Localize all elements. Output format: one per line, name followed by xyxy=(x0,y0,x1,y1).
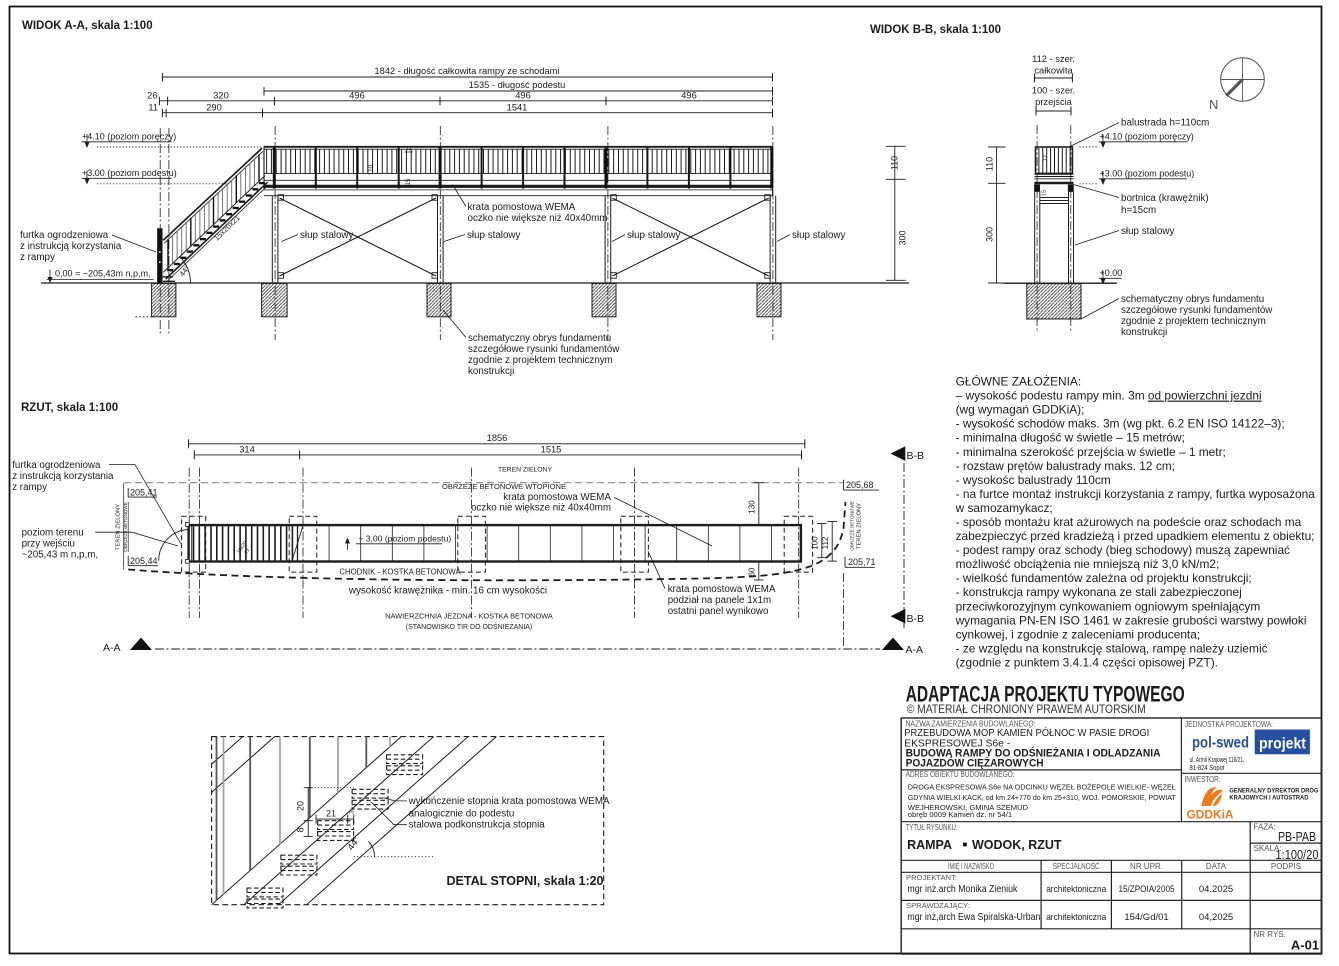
svg-text:1:100/20: 1:100/20 xyxy=(1276,847,1319,862)
svg-text:WIDOK A-A, skala 1:100: WIDOK A-A, skala 1:100 xyxy=(22,20,153,32)
svg-text:TYTUŁ RYSUNKU:: TYTUŁ RYSUNKU: xyxy=(906,823,958,832)
svg-text:słup stalowy: słup stalowy xyxy=(1121,226,1174,237)
svg-text:OBRZEŻE BETONOWE: OBRZEŻE BETONOWE xyxy=(122,502,128,552)
svg-text:bortnica (krawężnik): bortnica (krawężnik) xyxy=(1121,193,1209,204)
svg-text:wykończenie stopnia krata pomo: wykończenie stopnia krata pomostowa WEMA xyxy=(408,796,610,807)
svg-text:słup stalowy: słup stalowy xyxy=(467,230,520,241)
svg-text:obręb 0009 Kamień dz. nr 54/1: obręb 0009 Kamień dz. nr 54/1 xyxy=(908,810,1012,819)
svg-text:100: 100 xyxy=(811,536,820,550)
svg-text:mgr inż.arch Monika Zieniuk: mgr inż.arch Monika Zieniuk xyxy=(907,884,1018,895)
svg-text:całkowita: całkowita xyxy=(1034,66,1073,76)
svg-text:konstrukcji: konstrukcji xyxy=(1121,327,1167,338)
svg-text:DETAL STOPNI, skala 1:20: DETAL STOPNI, skala 1:20 xyxy=(447,874,604,888)
svg-text:słup stalowy: słup stalowy xyxy=(792,230,845,241)
svg-text:496: 496 xyxy=(681,91,697,101)
svg-text:przejścia: przejścia xyxy=(1035,97,1073,107)
svg-text:TEREN ZIELONY: TEREN ZIELONY xyxy=(498,467,552,474)
svg-text:1541: 1541 xyxy=(507,103,528,113)
svg-text:projekt: projekt xyxy=(1259,736,1306,753)
svg-text:81-824 Sopot: 81-824 Sopot xyxy=(1190,763,1225,772)
svg-text:20: 20 xyxy=(296,801,306,811)
svg-text:słup stalowy: słup stalowy xyxy=(627,230,680,241)
svg-text:SPECJALNOŚĆ: SPECJALNOŚĆ xyxy=(1053,862,1100,871)
svg-text:GENERALNY DYREKTOR DRÓG: GENERALNY DYREKTOR DRÓG xyxy=(1229,785,1318,794)
svg-text:TEREN ZIELONY: TEREN ZIELONY xyxy=(116,504,122,550)
svg-text:wysokość krawężnika - min. 16: wysokość krawężnika - min. 16 cm wysokoś… xyxy=(348,586,547,597)
svg-text:PROJEKTANT:: PROJEKTANT: xyxy=(906,873,957,882)
svg-text:314: 314 xyxy=(239,444,255,454)
svg-text:15: 15 xyxy=(406,178,412,185)
svg-text:15/ZPOIA/2005: 15/ZPOIA/2005 xyxy=(1119,884,1175,895)
svg-text:15: 15 xyxy=(1042,190,1048,196)
svg-text:NR UPR.: NR UPR. xyxy=(1130,862,1163,871)
svg-text:OBRZEŻE BETONOWE: OBRZEŻE BETONOWE xyxy=(849,501,855,551)
svg-text:krata pomostowa WEMA: krata pomostowa WEMA xyxy=(468,202,576,213)
svg-text:szczegółowe rysunki fundamentó: szczegółowe rysunki fundamentów xyxy=(1121,305,1273,316)
svg-text:- wysokośc balustrady 110cm: - wysokośc balustrady 110cm xyxy=(956,473,1111,487)
svg-text:8: 8 xyxy=(296,827,306,832)
svg-text:(zgodnie z punktem 3.4.1.4 czę: (zgodnie z punktem 3.4.1.4 części opisow… xyxy=(956,656,1218,670)
svg-text:100 - szer.: 100 - szer. xyxy=(1032,86,1075,96)
svg-text:RAMPA: RAMPA xyxy=(907,838,952,852)
svg-text:NAWIERZCHNIA JEZDNA - KOSTKA B: NAWIERZCHNIA JEZDNA - KOSTKA BETONOWA xyxy=(385,612,553,621)
svg-text:B-B: B-B xyxy=(907,450,925,462)
svg-text:zgodnie z projektem techniczny: zgodnie z projektem technicznym xyxy=(468,355,613,366)
svg-text:0,00 = ~205,43m n,p,m,: 0,00 = ~205,43m n,p,m, xyxy=(55,269,151,279)
svg-text:furtka ogrodzeniowa: furtka ogrodzeniowa xyxy=(12,460,101,471)
svg-text:balustrada h=110cm: balustrada h=110cm xyxy=(1121,118,1209,129)
svg-text:WODOK, RZUT: WODOK, RZUT xyxy=(972,838,1062,852)
svg-text:h=15cm: h=15cm xyxy=(1121,205,1156,216)
svg-text:z rampy: z rampy xyxy=(12,482,47,493)
svg-text:154/Gd/01: 154/Gd/01 xyxy=(1124,912,1168,923)
svg-text:04.2025: 04.2025 xyxy=(1199,884,1233,895)
svg-text:1842 - długość całkowita rampy: 1842 - długość całkowita rampy ze schoda… xyxy=(375,66,560,76)
svg-text:290: 290 xyxy=(206,103,222,113)
svg-text:A-A: A-A xyxy=(906,644,924,656)
svg-text:A-A: A-A xyxy=(103,642,121,654)
svg-text:ADRES OBIEKTU BUDOWLANEGO:: ADRES OBIEKTU BUDOWLANEGO: xyxy=(906,770,1015,779)
svg-text:IMIĘ I NAZWISKO: IMIĘ I NAZWISKO xyxy=(948,862,994,871)
svg-text:- minimalna długość w świetle: - minimalna długość w świetle – 15 metró… xyxy=(956,431,1185,445)
svg-text:POJAZDÓW CIĘŻAROWYCH: POJAZDÓW CIĘŻAROWYCH xyxy=(906,756,1044,769)
svg-text:poziom terenu: poziom terenu xyxy=(22,528,84,539)
svg-text:WIDOK B-B, skala 1:100: WIDOK B-B, skala 1:100 xyxy=(870,24,1001,36)
svg-text:architektoniczna: architektoniczna xyxy=(1046,912,1107,923)
svg-text:szczegółowe rysunki fundamentó: szczegółowe rysunki fundamentów xyxy=(468,344,620,355)
svg-text:oczko nie większe niż 40x40mm: oczko nie większe niż 40x40mm xyxy=(471,503,611,514)
svg-text:furtka ogrodzeniowa: furtka ogrodzeniowa xyxy=(20,230,109,241)
svg-text:110: 110 xyxy=(985,157,995,171)
svg-text:130: 130 xyxy=(748,500,757,514)
svg-text:zabezpieczyć przed kradzieżą i: zabezpieczyć przed kradzieżą i przed upa… xyxy=(956,529,1315,543)
svg-text:04,2025: 04,2025 xyxy=(1199,912,1233,923)
svg-text:KRAJOWYCH I AUTOSTRAD: KRAJOWYCH I AUTOSTRAD xyxy=(1229,794,1308,801)
svg-text:wymagania PN-EN ISO 1461 w zak: wymagania PN-EN ISO 1461 w zakresie grub… xyxy=(955,613,1307,627)
svg-text:SPRAWDZAJĄCY:: SPRAWDZAJĄCY: xyxy=(906,901,970,910)
svg-text:OBRZEŻE BETONOWE WTOPIONE: OBRZEŻE BETONOWE WTOPIONE xyxy=(442,482,566,491)
svg-text:- minimalna szerokość przejści: - minimalna szerokość przejścia w świetl… xyxy=(956,445,1226,459)
svg-text:z instrukcją korzystania: z instrukcją korzystania xyxy=(12,471,114,482)
svg-text:GDYNIA WIELKI KACK, od km 24+7: GDYNIA WIELKI KACK, od km 24+770 do km 2… xyxy=(908,793,1176,802)
svg-text:60: 60 xyxy=(748,567,757,576)
svg-text:496: 496 xyxy=(349,91,365,101)
svg-text:CHODNIK - KOSTKA BETONOWA: CHODNIK - KOSTKA BETONOWA xyxy=(339,568,461,577)
svg-text:przy wejściu: przy wejściu xyxy=(22,539,75,550)
svg-text:1535 - długość podestu: 1535 - długość podestu xyxy=(469,80,566,90)
svg-text:300: 300 xyxy=(898,230,908,245)
svg-text:© MATERIAŁ CHRONIONY PRAWEM AU: © MATERIAŁ CHRONIONY PRAWEM AUTORSKIM xyxy=(907,702,1146,716)
svg-text:26: 26 xyxy=(147,91,157,101)
svg-text:1856: 1856 xyxy=(487,433,508,443)
svg-text:INWESTOR:: INWESTOR: xyxy=(1185,775,1221,784)
svg-text:PRZEBUDOWA MOP KAMIEŃ PÓŁNOC W: PRZEBUDOWA MOP KAMIEŃ PÓŁNOC W PASIE DRO… xyxy=(904,726,1149,739)
svg-text:(STANOWISKO TIR DO ODŚNIEŻANIA: (STANOWISKO TIR DO ODŚNIEŻANIA) xyxy=(406,622,533,631)
svg-text:- ze względu na konstrukcję st: - ze względu na konstrukcję stalową, ram… xyxy=(956,641,1268,655)
svg-text:podział na panele 1x1m: podział na panele 1x1m xyxy=(668,595,772,606)
svg-text:stalowa podkonstrukcja stopnia: stalowa podkonstrukcja stopnia xyxy=(409,820,546,831)
svg-text:(wg wymagań GDDKiA);: (wg wymagań GDDKiA); xyxy=(956,403,1085,417)
svg-text:ostatni panel wynikowo: ostatni panel wynikowo xyxy=(668,606,769,617)
svg-text:PODPIS: PODPIS xyxy=(1271,862,1301,871)
svg-text:mgr inż,arch Ewa Spiralska-Urb: mgr inż,arch Ewa Spiralska-Urban xyxy=(907,912,1040,923)
svg-text:z rampy: z rampy xyxy=(20,252,55,263)
svg-text:RZUT, skala 1:100: RZUT, skala 1:100 xyxy=(21,402,118,414)
svg-text:496: 496 xyxy=(515,91,531,101)
svg-text:słup stalowy: słup stalowy xyxy=(300,230,353,241)
svg-text:TEREN ZIELONY: TEREN ZIELONY xyxy=(857,503,863,549)
svg-text:205,68: 205,68 xyxy=(846,480,874,490)
svg-text:- na furtce montaż instrukcji: - na furtce montaż instrukcji korzystani… xyxy=(956,487,1316,501)
svg-text:+4.10 (poziom poręczy): +4.10 (poziom poręczy) xyxy=(82,132,176,142)
svg-text:pol-swed: pol-swed xyxy=(1192,735,1249,752)
svg-text:– wysokość podestu rampy min.: – wysokość podestu rampy min. 3m od powi… xyxy=(956,389,1262,403)
svg-text:112 - szer.: 112 - szer. xyxy=(1032,54,1075,64)
svg-text:architektoniczna: architektoniczna xyxy=(1046,884,1107,895)
svg-text:w samozamykacz;: w samozamykacz; xyxy=(955,501,1053,515)
svg-text:krata pomostowa WEMA: krata pomostowa WEMA xyxy=(503,492,611,503)
svg-text:oczko nie większe niż 40x40mm: oczko nie większe niż 40x40mm xyxy=(468,213,608,224)
svg-text:- wysokość schodów maks. 3m (w: - wysokość schodów maks. 3m (wg pkt. 6.2… xyxy=(956,417,1285,431)
svg-text:1515: 1515 xyxy=(541,444,562,454)
svg-text:PB-PAB: PB-PAB xyxy=(1278,829,1316,844)
svg-text:+3.00 (poziom podestu): +3.00 (poziom podestu) xyxy=(82,168,177,178)
svg-text:schematyczny obrys fundamentu: schematyczny obrys fundamentu xyxy=(468,333,611,344)
svg-text:3: 3 xyxy=(349,810,356,814)
svg-text:110: 110 xyxy=(368,164,375,175)
svg-text:N: N xyxy=(1209,97,1218,112)
svg-text:~205,43 m n,p,m,: ~205,43 m n,p,m, xyxy=(22,550,99,561)
svg-text:możliwość obciążenia nie mniej: możliwość obciążenia nie mniejszą niż 3,… xyxy=(956,557,1220,571)
svg-text:z instrukcją korzystania: z instrukcją korzystania xyxy=(20,241,122,252)
svg-text:przeciwkorozyjnym cynkowaniem: przeciwkorozyjnym cynkowaniem ogniowym s… xyxy=(956,599,1261,613)
svg-text:cynkowej, i zgodnie z zaleceni: cynkowej, i zgodnie z zaleceniami produc… xyxy=(956,627,1201,641)
svg-text:krata pomostowa WEMA: krata pomostowa WEMA xyxy=(668,584,776,595)
svg-text:+ 3,00 (poziom podestu): + 3,00 (poziom podestu) xyxy=(358,534,451,544)
svg-text:analogicznie do podestu: analogicznie do podestu xyxy=(409,809,515,820)
svg-text:112: 112 xyxy=(821,536,830,549)
svg-text:DROGA EKSPRESOWA S6e NA ODCINK: DROGA EKSPRESOWA S6e NA ODCINKU WĘZEŁ BO… xyxy=(908,782,1176,791)
svg-text:205,44: 205,44 xyxy=(130,556,158,566)
svg-text:zgodnie z projektem techniczny: zgodnie z projektem technicznym xyxy=(1121,316,1266,327)
svg-text:- podest rampy oraz schody (bi: - podest rampy oraz schody (bieg schodow… xyxy=(956,543,1290,557)
svg-text:- rozstaw prętów balustrady ma: - rozstaw prętów balustrady maks. 12 cm; xyxy=(956,459,1175,473)
svg-text:+4.10 (poziom poręczy): +4.10 (poziom poręczy) xyxy=(1100,132,1194,142)
svg-text:- konstrukcja rampy wykonana z: - konstrukcja rampy wykonana ze stali za… xyxy=(956,585,1242,599)
svg-text:110: 110 xyxy=(890,156,900,170)
svg-text:205,71: 205,71 xyxy=(848,557,876,567)
svg-text:12: 12 xyxy=(406,146,412,152)
svg-text:11: 11 xyxy=(148,103,158,113)
svg-text:GŁÓWNE ZAŁOŻENIA:: GŁÓWNE ZAŁOŻENIA: xyxy=(956,374,1082,389)
svg-text:JEDNOSTKA PROJEKTOWA:: JEDNOSTKA PROJEKTOWA: xyxy=(1185,720,1273,729)
svg-text:21: 21 xyxy=(326,809,336,819)
svg-text:konstrukcji: konstrukcji xyxy=(468,366,514,377)
svg-text:A-01: A-01 xyxy=(1291,938,1319,953)
svg-text:B-B: B-B xyxy=(907,613,925,625)
svg-text:NR RYS.: NR RYS. xyxy=(1254,930,1286,939)
svg-text:+3.00 (poziom podestu): +3.00 (poziom podestu) xyxy=(1100,169,1195,179)
svg-text:12: 12 xyxy=(1043,155,1049,161)
svg-text:300: 300 xyxy=(985,227,995,242)
svg-text:GDDKiA: GDDKiA xyxy=(1187,808,1234,822)
svg-text:320: 320 xyxy=(213,91,229,101)
svg-text:- sposób montażu krat ażurowyc: - sposób montażu krat ażurowych na podeś… xyxy=(956,515,1302,529)
svg-text:- wielkość fundamentów zależna: - wielkość fundamentów zależna od projek… xyxy=(956,571,1252,585)
svg-text:schematyczny obrys fundamentu: schematyczny obrys fundamentu xyxy=(1121,294,1264,305)
svg-text:DATA: DATA xyxy=(1206,862,1227,871)
svg-text:FAZA:: FAZA: xyxy=(1254,823,1276,832)
